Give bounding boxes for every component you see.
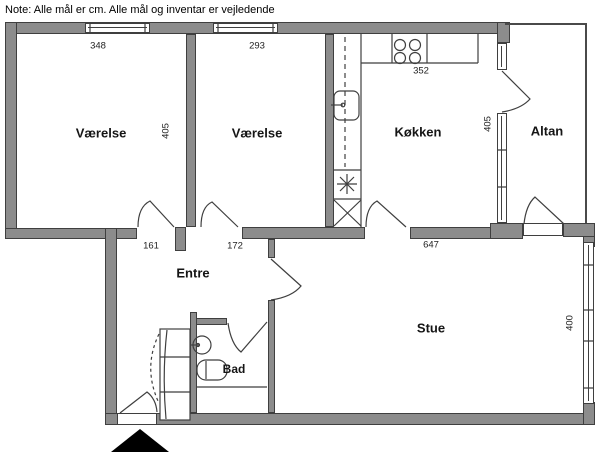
door-arc-kitchen <box>366 201 406 227</box>
door-arc-room-left <box>138 201 174 227</box>
door-arc-stue-altan <box>524 197 564 224</box>
dim-entre-right: 172 <box>227 241 243 252</box>
floor-plan: Note: Alle mål er cm. Alle mål og invent… <box>0 0 600 457</box>
door-arc-entre-stue <box>271 259 301 300</box>
dim-stue-width: 647 <box>423 240 439 251</box>
room-label-stue: Stue <box>417 321 445 336</box>
room-label-bad: Bad <box>223 362 246 376</box>
room-label-vaerelse-left: Værelse <box>76 126 127 141</box>
door-arc-room-mid <box>201 202 238 227</box>
dim-koekken-depth: 405 <box>483 116 494 132</box>
dim-entre-left: 161 <box>143 241 159 252</box>
bath-sink-icon <box>191 336 211 354</box>
fridge-icon <box>334 200 361 226</box>
stove-icon <box>395 40 421 64</box>
room-label-altan: Altan <box>531 124 564 139</box>
dim-koekken-width: 352 <box>413 66 429 77</box>
room-label-vaerelse-mid: Værelse <box>232 126 283 141</box>
door-arc-bad <box>228 322 267 352</box>
dim-vaerelse-left-depth: 405 <box>161 123 172 139</box>
room-label-koekken: Køkken <box>395 125 442 140</box>
dim-stue-depth: 400 <box>565 315 576 331</box>
door-arc-entry <box>120 392 157 413</box>
door-arc-kitchen-altan <box>502 71 530 112</box>
freezer-icon <box>337 174 357 194</box>
entrance-arrow-icon <box>111 429 169 452</box>
room-label-entre: Entre <box>176 266 209 281</box>
dim-vaerelse-left-width: 348 <box>90 41 106 52</box>
dim-vaerelse-mid-width: 293 <box>249 41 265 52</box>
